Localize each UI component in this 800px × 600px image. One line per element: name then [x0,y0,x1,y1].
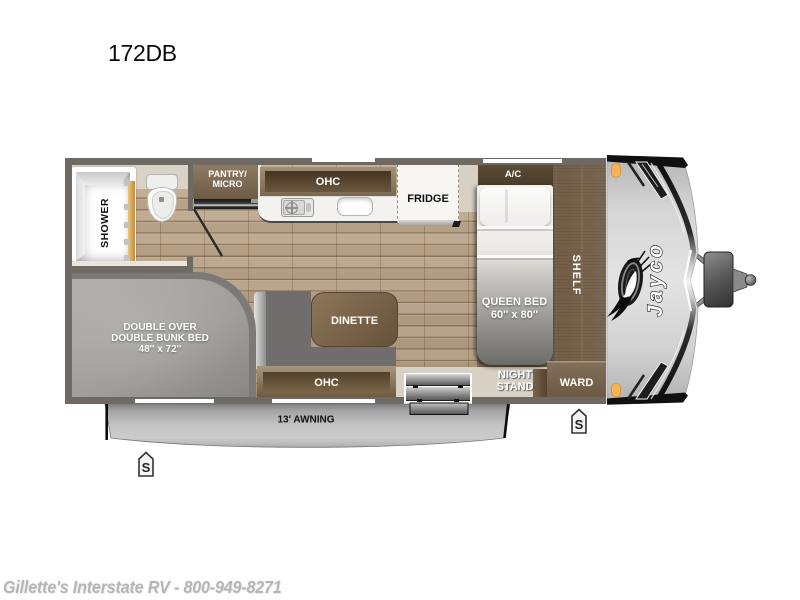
svg-text:13' AWNING: 13' AWNING [277,415,334,426]
svg-text:Jayco: Jayco [644,245,667,317]
svg-text:S: S [142,460,151,475]
svg-text:S: S [575,417,584,432]
